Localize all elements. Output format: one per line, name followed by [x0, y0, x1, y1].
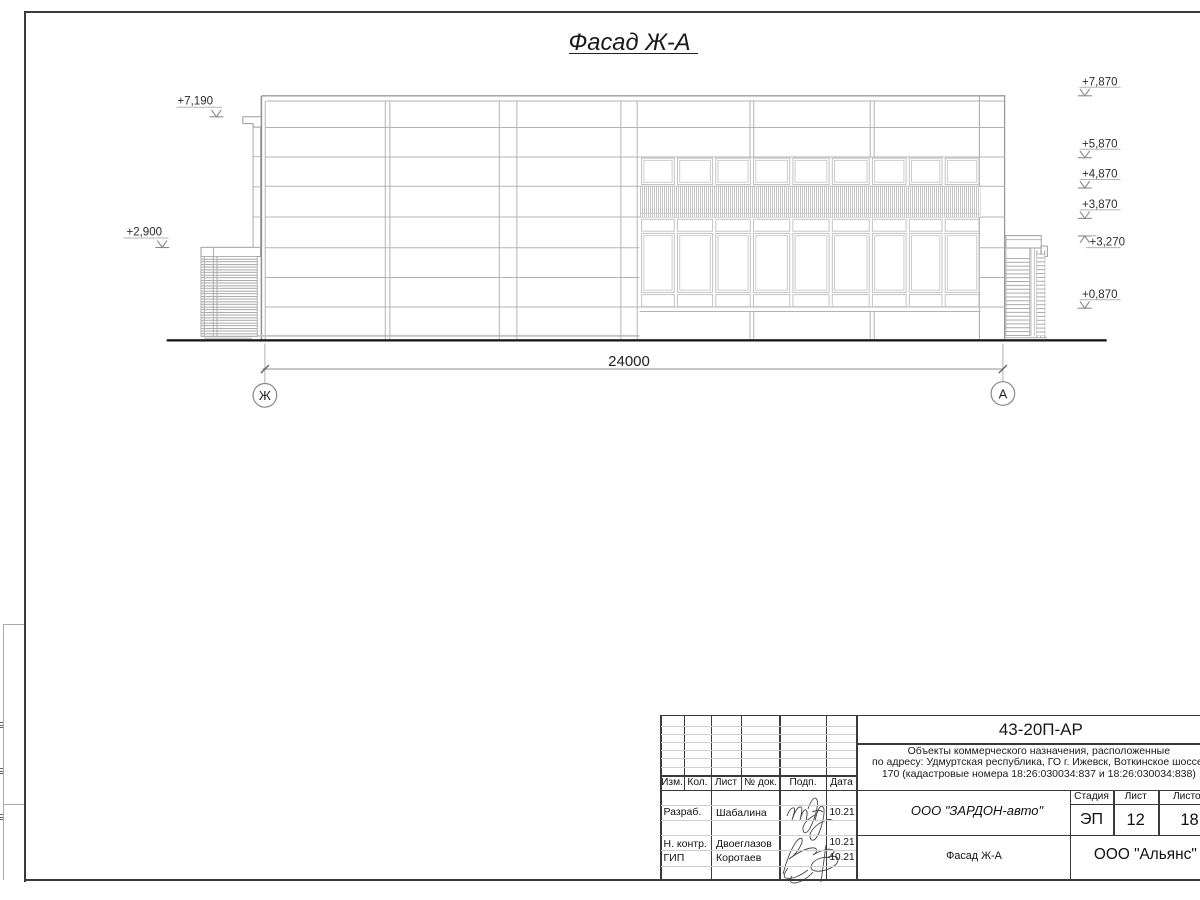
- svg-text:+2,900: +2,900: [127, 227, 163, 239]
- svg-text:+3,270: +3,270: [1090, 236, 1126, 248]
- svg-text:+4,870: +4,870: [1082, 169, 1118, 181]
- svg-text:Ж: Ж: [259, 388, 271, 403]
- svg-text:А: А: [999, 386, 1008, 401]
- svg-text:+5,870: +5,870: [1082, 138, 1118, 150]
- svg-text:24000: 24000: [608, 353, 650, 370]
- svg-text:+7,190: +7,190: [178, 96, 214, 108]
- svg-text:+7,870: +7,870: [1082, 76, 1118, 88]
- svg-text:+3,870: +3,870: [1082, 199, 1118, 211]
- svg-text:+0,870: +0,870: [1082, 289, 1118, 301]
